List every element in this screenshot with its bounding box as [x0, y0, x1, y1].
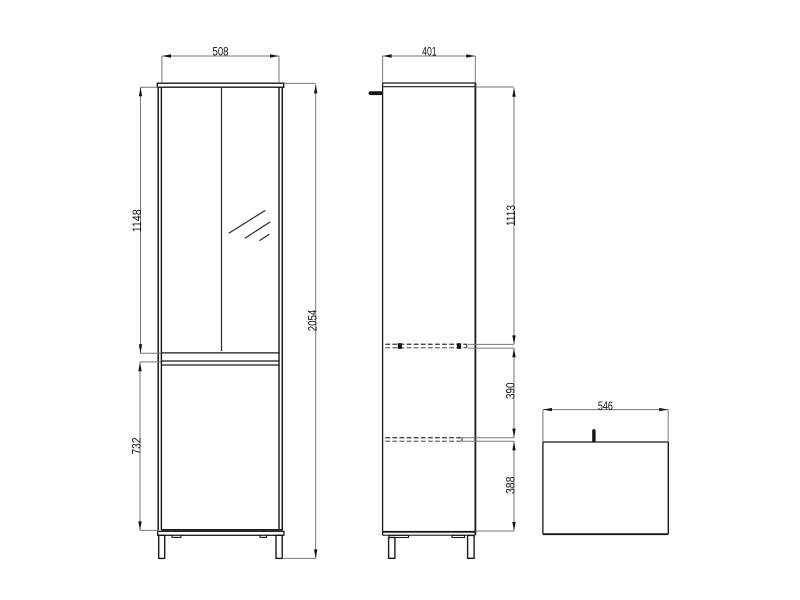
- svg-text:546: 546: [598, 399, 613, 413]
- svg-text:1113: 1113: [504, 205, 518, 226]
- svg-text:1148: 1148: [130, 209, 144, 232]
- svg-text:388: 388: [504, 476, 518, 494]
- svg-text:2054: 2054: [306, 310, 320, 332]
- svg-text:732: 732: [130, 437, 144, 454]
- svg-text:508: 508: [213, 45, 229, 59]
- svg-text:390: 390: [504, 382, 518, 399]
- svg-text:401: 401: [422, 45, 437, 59]
